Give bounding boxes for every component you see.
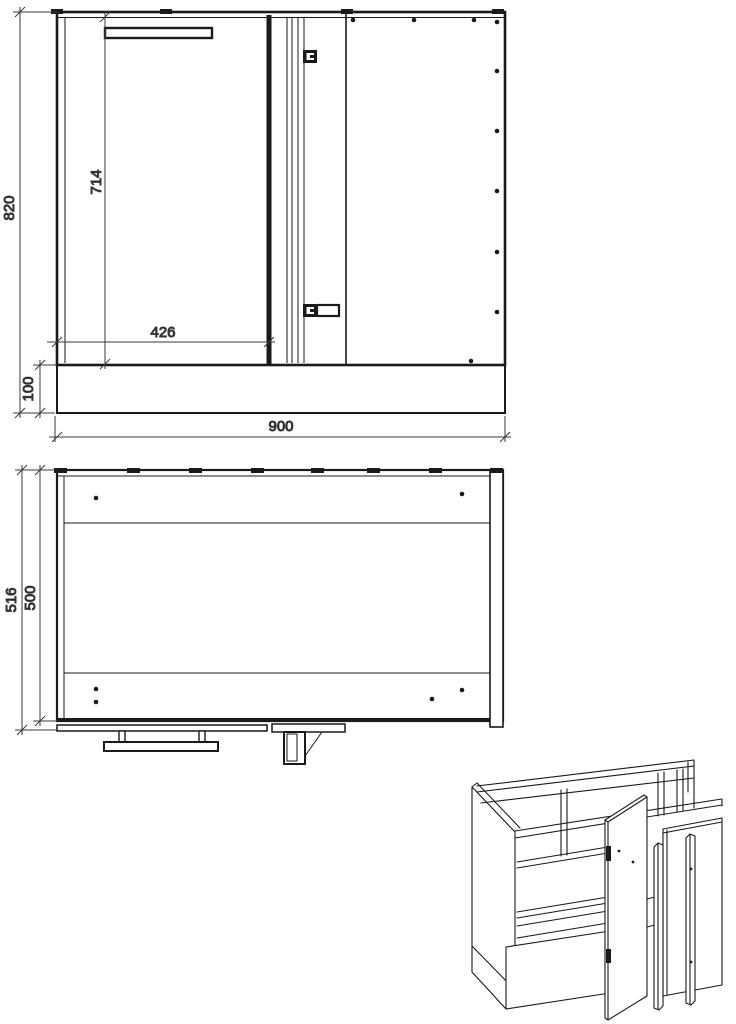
- dim-label-900: 900: [268, 418, 293, 435]
- iso-plinth: [506, 931, 610, 1009]
- plinth: [57, 365, 505, 413]
- door-handle: [105, 28, 212, 38]
- hinge-bottom: [303, 304, 339, 317]
- dim-label-100: 100: [20, 376, 37, 401]
- dim-carcass-depth: 500: [22, 465, 57, 726]
- front-view: 820 100 714 426: [1, 7, 511, 442]
- iso-hinge-bottom: [606, 949, 611, 963]
- dim-label-426: 426: [150, 324, 175, 341]
- plan-carcass: [57, 470, 503, 721]
- dim-label-820: 820: [1, 195, 18, 220]
- dim-total-width: 900: [49, 416, 511, 442]
- dim-label-714: 714: [88, 169, 105, 194]
- plan-door-strip: [57, 725, 267, 731]
- iso-hinge-top: [606, 846, 611, 861]
- plan-right-side-panel: [490, 470, 503, 727]
- iso-view: [472, 760, 722, 1020]
- technical-drawing: 820 100 714 426: [0, 0, 736, 1024]
- dim-label-516: 516: [3, 587, 20, 612]
- iso-door: [605, 795, 647, 1020]
- plan-hinge: [284, 732, 322, 764]
- drawing-canvas: 820 100 714 426: [0, 0, 736, 1024]
- dim-total-height: 820: [1, 7, 57, 418]
- hinge-top: [303, 50, 317, 63]
- carcass: [57, 12, 505, 365]
- plan-filler-strip: [272, 724, 345, 732]
- dim-plinth-height: 100: [20, 360, 57, 418]
- plan-view: 516 500: [3, 465, 503, 764]
- plan-door-handle: [104, 731, 218, 751]
- dim-label-500: 500: [22, 585, 39, 610]
